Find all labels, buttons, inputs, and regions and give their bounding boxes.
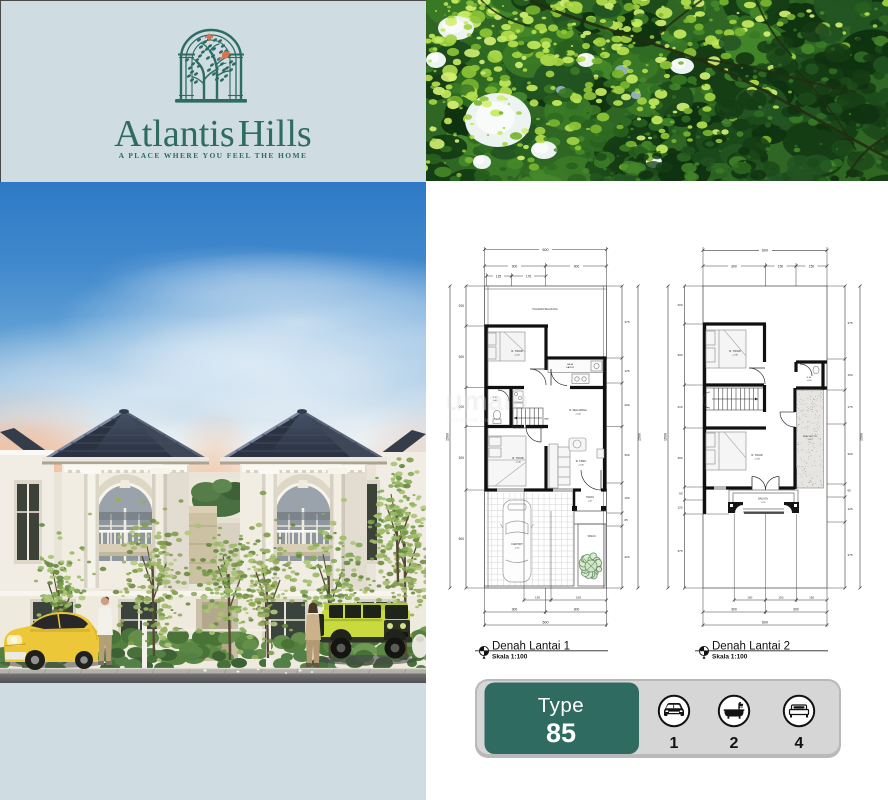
svg-text:215: 215	[677, 405, 682, 409]
svg-text:+0.00: +0.00	[514, 355, 520, 357]
svg-text:85: 85	[546, 718, 576, 748]
svg-text:300: 300	[625, 453, 630, 457]
svg-text:300: 300	[512, 264, 518, 268]
svg-text:R. KELUARGA: R. KELUARGA	[569, 408, 587, 412]
svg-text:65: 65	[848, 489, 852, 493]
svg-text:1: 1	[670, 735, 679, 752]
svg-text:+0.00: +0.00	[515, 462, 521, 464]
svg-text:Skala 1:100: Skala 1:100	[712, 654, 748, 661]
svg-text:1500: 1500	[638, 433, 642, 441]
svg-text:125: 125	[625, 369, 630, 373]
svg-text:1500: 1500	[860, 433, 864, 441]
svg-text:umain: umain	[446, 385, 528, 416]
svg-text:300: 300	[677, 353, 682, 357]
svg-text:125: 125	[848, 507, 853, 511]
svg-text:600: 600	[762, 621, 768, 625]
svg-text:HALAMAN BELAKANG: HALAMAN BELAKANG	[532, 308, 557, 311]
svg-text:+2.95: +2.95	[732, 355, 738, 357]
svg-text:300: 300	[459, 355, 465, 359]
svg-text:135: 135	[535, 596, 540, 600]
svg-text:125: 125	[496, 274, 502, 278]
svg-text:MEJA: MEJA	[567, 363, 573, 366]
svg-text:150: 150	[809, 596, 814, 600]
svg-text:300: 300	[512, 608, 518, 612]
svg-text:65: 65	[679, 492, 683, 496]
svg-text:300: 300	[731, 608, 737, 612]
svg-text:150: 150	[625, 496, 630, 500]
svg-text:R. TIDUR: R. TIDUR	[512, 456, 523, 460]
svg-text:NAIK: NAIK	[544, 418, 549, 421]
svg-text:-0.02: -0.02	[588, 501, 593, 503]
svg-text:375: 375	[625, 320, 630, 324]
svg-text:+0.00: +0.00	[575, 414, 581, 416]
svg-text:2: 2	[730, 735, 739, 752]
svg-text:150: 150	[778, 596, 783, 600]
svg-text:300: 300	[574, 608, 580, 612]
svg-text:300: 300	[793, 608, 799, 612]
svg-text:K.M.: K.M.	[807, 377, 812, 379]
svg-text:R. TIDUR: R. TIDUR	[729, 349, 740, 353]
svg-text:300: 300	[574, 264, 580, 268]
svg-text:375: 375	[848, 321, 853, 325]
svg-text:Type: Type	[538, 694, 584, 717]
svg-text:+2.95: +2.95	[754, 459, 760, 461]
svg-text:gers terbaik anda: gers terbaik anda	[447, 418, 494, 424]
svg-text:+2.90: +2.90	[806, 380, 812, 382]
svg-text:ATAP BETON: ATAP BETON	[803, 435, 817, 438]
svg-text:500: 500	[459, 537, 465, 541]
svg-text:CARPORT: CARPORT	[511, 543, 523, 546]
svg-text:+3.15: +3.15	[807, 439, 813, 441]
svg-text:200: 200	[459, 304, 465, 308]
svg-text:175: 175	[526, 274, 532, 278]
svg-text:165: 165	[576, 596, 581, 600]
svg-text:1500: 1500	[446, 433, 450, 441]
svg-text:+2.95: +2.95	[760, 502, 766, 504]
svg-text:150: 150	[747, 596, 752, 600]
svg-text:125: 125	[677, 506, 682, 510]
svg-text:TERAS: TERAS	[586, 496, 594, 499]
svg-text:150: 150	[809, 264, 815, 268]
svg-text:200: 200	[677, 303, 682, 307]
svg-text:300: 300	[848, 452, 853, 456]
svg-text:DAPUR: DAPUR	[566, 366, 574, 369]
svg-text:Skala 1:100: Skala 1:100	[492, 654, 528, 661]
svg-text:150: 150	[848, 373, 853, 377]
svg-text:BALKON: BALKON	[758, 498, 768, 501]
svg-text:R. TAMU: R. TAMU	[576, 459, 587, 463]
svg-text:300: 300	[731, 264, 737, 268]
svg-text:600: 600	[543, 248, 549, 252]
svg-text:600: 600	[543, 621, 549, 625]
svg-text:320: 320	[625, 555, 630, 559]
svg-text:150: 150	[778, 264, 784, 268]
svg-text:4: 4	[795, 735, 804, 752]
svg-text:R. TIDUR: R. TIDUR	[511, 349, 522, 353]
svg-text:375: 375	[677, 549, 682, 553]
svg-text:1500: 1500	[664, 433, 668, 441]
svg-text:+0.00: +0.00	[578, 465, 584, 467]
svg-text:65: 65	[625, 518, 629, 522]
svg-text:175: 175	[848, 405, 853, 409]
svg-text:TAMAN: TAMAN	[587, 535, 595, 538]
svg-text:375: 375	[848, 553, 853, 557]
svg-text:200: 200	[625, 403, 630, 407]
svg-text:300: 300	[677, 456, 682, 460]
svg-text:R. TIDUR: R. TIDUR	[751, 453, 762, 457]
svg-text:600: 600	[762, 249, 768, 253]
svg-text:300: 300	[459, 456, 465, 460]
